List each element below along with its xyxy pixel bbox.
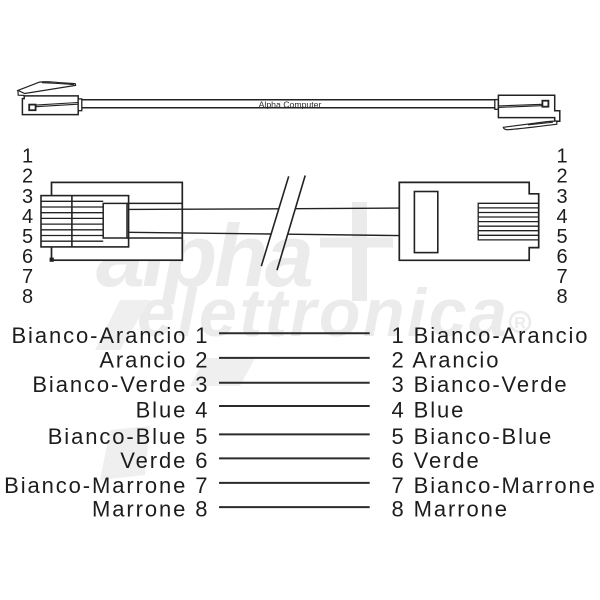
svg-text:Bianco-Verde 3: Bianco-Verde 3 (32, 372, 209, 397)
svg-text:8: 8 (556, 286, 567, 308)
svg-text:1: 1 (556, 146, 567, 168)
svg-text:3: 3 (22, 186, 33, 208)
svg-text:2: 2 (556, 166, 567, 188)
svg-text:Marrone 8: Marrone 8 (92, 497, 209, 522)
svg-text:Arancio 2: Arancio 2 (99, 348, 209, 373)
svg-text:Bianco-Marrone 7: Bianco-Marrone 7 (4, 473, 209, 498)
svg-text:6 Verde: 6 Verde (392, 448, 481, 473)
svg-text:Verde 6: Verde 6 (120, 448, 209, 473)
svg-text:4 Blue: 4 Blue (392, 398, 466, 423)
svg-text:Bianco-Blue 5: Bianco-Blue 5 (48, 424, 210, 449)
svg-text:1: 1 (22, 146, 33, 168)
svg-text:7: 7 (556, 266, 567, 288)
svg-text:4: 4 (22, 206, 33, 228)
svg-text:7 Bianco-Marrone: 7 Bianco-Marrone (392, 473, 597, 498)
svg-text:8: 8 (22, 286, 33, 308)
svg-text:7: 7 (22, 266, 33, 288)
svg-text:5: 5 (22, 226, 33, 248)
svg-text:3: 3 (556, 186, 567, 208)
svg-text:2 Arancio: 2 Arancio (392, 348, 501, 373)
svg-text:2: 2 (22, 166, 33, 188)
svg-text:5: 5 (556, 226, 567, 248)
svg-text:4: 4 (556, 206, 567, 228)
svg-text:Bianco-Arancio 1: Bianco-Arancio 1 (11, 323, 209, 348)
svg-text:5 Bianco-Blue: 5 Bianco-Blue (392, 424, 554, 449)
svg-text:Alpha Computer: Alpha Computer (259, 99, 322, 109)
svg-text:6: 6 (22, 246, 33, 268)
svg-text:3 Bianco-Verde: 3 Bianco-Verde (392, 372, 569, 397)
svg-text:Blue 4: Blue 4 (136, 398, 210, 423)
svg-text:1 Bianco-Arancio: 1 Bianco-Arancio (392, 323, 590, 348)
svg-text:6: 6 (556, 246, 567, 268)
svg-text:8 Marrone: 8 Marrone (392, 497, 509, 522)
